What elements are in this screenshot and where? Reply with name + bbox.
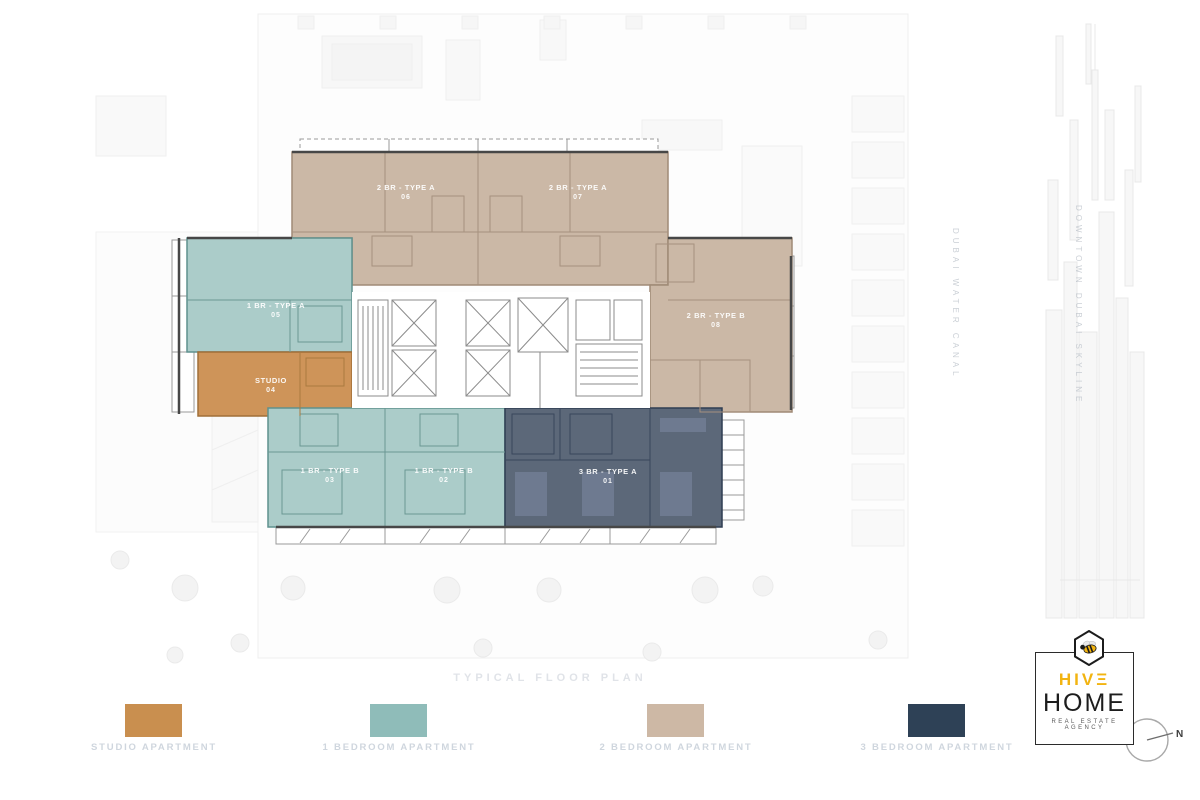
unit-number: 01 bbox=[579, 477, 637, 488]
legend-label-2br: 2 BEDROOM APARTMENT bbox=[546, 742, 806, 753]
unit-type: 3 BR - TYPE A bbox=[579, 467, 637, 476]
unit-label-3br-a-01: 3 BR - TYPE A 01 bbox=[579, 466, 637, 488]
unit-label-2br-b-08: 2 BR - TYPE B 08 bbox=[687, 310, 746, 332]
legend-swatch-studio bbox=[125, 704, 182, 737]
unit-type: 1 BR - TYPE B bbox=[301, 466, 360, 475]
legend-swatch-3br bbox=[908, 704, 965, 737]
unit-type: 2 BR - TYPE A bbox=[549, 183, 607, 192]
unit-label-studio-04: STUDIO 04 bbox=[255, 375, 287, 397]
legend-label-studio: STUDIO APARTMENT bbox=[24, 742, 284, 753]
unit-type: 2 BR - TYPE B bbox=[687, 311, 746, 320]
unit-number: 06 bbox=[377, 193, 435, 204]
skyline-illustration bbox=[1046, 24, 1144, 618]
unit-number: 07 bbox=[549, 193, 607, 204]
legend-label-3br: 3 BEDROOM APARTMENT bbox=[807, 742, 1067, 753]
building-core bbox=[352, 292, 650, 408]
unit-label-2br-a-06: 2 BR - TYPE A 06 bbox=[377, 182, 435, 204]
context-label-canal: DUBAI WATER CANAL bbox=[951, 228, 960, 380]
unit-label-2br-a-07: 2 BR - TYPE A 07 bbox=[549, 182, 607, 204]
legend-label-1br: 1 BEDROOM APARTMENT bbox=[269, 742, 529, 753]
plan-caption: TYPICAL FLOOR PLAN bbox=[453, 672, 646, 684]
compass-north-label: N bbox=[1176, 729, 1183, 740]
unit-type: 1 BR - TYPE A bbox=[247, 301, 305, 310]
unit-area-1br-a-left bbox=[187, 238, 352, 352]
unit-number: 08 bbox=[687, 321, 746, 332]
unit-type: 1 BR - TYPE B bbox=[415, 466, 474, 475]
logo-hive-text: HIVΞ bbox=[1036, 670, 1133, 690]
unit-label-1br-b-03: 1 BR - TYPE B 03 bbox=[301, 465, 360, 487]
legend-swatch-2br bbox=[647, 704, 704, 737]
context-label-skyline: DOWNTOWN DUBAI SKYLINE bbox=[1074, 205, 1083, 405]
unit-label-1br-a-05: 1 BR - TYPE A 05 bbox=[247, 300, 305, 322]
unit-number: 02 bbox=[415, 476, 474, 487]
unit-number: 05 bbox=[247, 311, 305, 322]
logo-tagline: REAL ESTATE AGENCY bbox=[1036, 719, 1133, 731]
legend-swatch-1br bbox=[370, 704, 427, 737]
logo-home-text: HOME bbox=[1036, 690, 1133, 716]
floorplan-page: 2 BR - TYPE A 06 2 BR - TYPE A 07 1 BR -… bbox=[0, 0, 1200, 800]
bee-icon bbox=[1073, 630, 1105, 666]
unit-label-1br-b-02: 1 BR - TYPE B 02 bbox=[415, 465, 474, 487]
unit-number: 04 bbox=[255, 386, 287, 397]
unit-type: 2 BR - TYPE A bbox=[377, 183, 435, 192]
unit-number: 03 bbox=[301, 476, 360, 487]
unit-type: STUDIO bbox=[255, 376, 287, 385]
